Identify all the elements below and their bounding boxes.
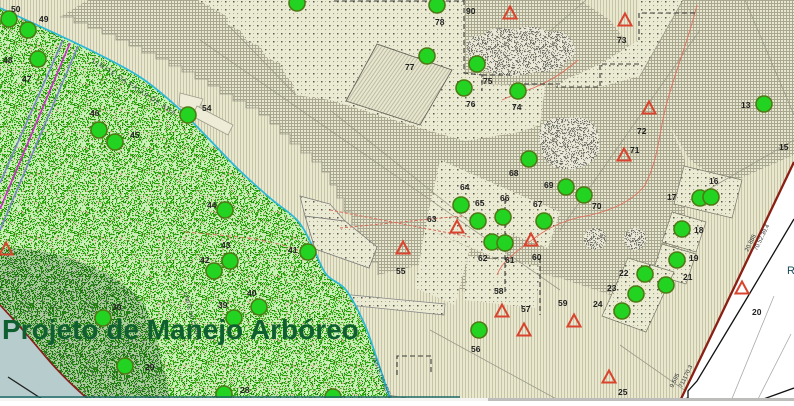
svg-text:41: 41 (288, 245, 298, 255)
svg-text:71: 71 (630, 145, 640, 155)
svg-text:67: 67 (533, 199, 543, 209)
svg-text:21: 21 (683, 272, 693, 282)
svg-text:77: 77 (405, 62, 415, 72)
svg-text:48: 48 (3, 55, 13, 65)
svg-text:20: 20 (752, 307, 762, 317)
svg-text:13: 13 (741, 100, 751, 110)
svg-text:65: 65 (475, 198, 485, 208)
svg-text:58: 58 (494, 286, 504, 296)
svg-text:29: 29 (145, 362, 155, 372)
svg-text:28: 28 (240, 385, 250, 395)
svg-text:56: 56 (471, 344, 481, 354)
svg-text:66: 66 (500, 193, 510, 203)
svg-text:73: 73 (617, 35, 627, 45)
svg-text:16: 16 (709, 176, 719, 186)
svg-text:74: 74 (512, 102, 522, 112)
svg-text:Projeto de Manejo Arbóreo: Projeto de Manejo Arbóreo (2, 314, 359, 345)
svg-text:90: 90 (466, 6, 476, 16)
svg-text:50: 50 (11, 4, 21, 14)
svg-text:55: 55 (396, 266, 406, 276)
svg-text:57: 57 (521, 304, 531, 314)
svg-text:39: 39 (218, 300, 228, 310)
svg-text:78: 78 (435, 17, 445, 27)
svg-text:75: 75 (483, 76, 493, 86)
svg-text:47: 47 (22, 74, 32, 84)
svg-text:22: 22 (619, 268, 629, 278)
svg-text:70: 70 (592, 201, 602, 211)
svg-text:17: 17 (667, 192, 677, 202)
svg-text:62: 62 (478, 253, 488, 263)
svg-text:30: 30 (112, 302, 122, 312)
svg-text:72: 72 (637, 126, 647, 136)
svg-text:40: 40 (247, 288, 257, 298)
svg-text:25: 25 (618, 387, 628, 397)
svg-text:69: 69 (544, 180, 554, 190)
svg-text:54: 54 (202, 103, 212, 113)
svg-text:44: 44 (207, 200, 217, 210)
svg-text:45: 45 (130, 130, 140, 140)
svg-text:18: 18 (694, 225, 704, 235)
svg-text:60: 60 (532, 252, 542, 262)
svg-text:63: 63 (427, 214, 437, 224)
svg-text:61: 61 (505, 255, 515, 265)
svg-text:24: 24 (593, 299, 603, 309)
svg-text:15: 15 (779, 142, 789, 152)
svg-text:19: 19 (689, 253, 699, 263)
svg-text:46: 46 (90, 108, 100, 118)
svg-text:76: 76 (466, 99, 476, 109)
svg-text:64: 64 (460, 182, 470, 192)
svg-text:23: 23 (607, 283, 617, 293)
svg-text:R: R (787, 265, 794, 277)
svg-text:42: 42 (200, 255, 210, 265)
svg-text:49: 49 (39, 14, 49, 24)
svg-text:43: 43 (221, 240, 231, 250)
svg-text:68: 68 (509, 168, 519, 178)
svg-text:59: 59 (558, 298, 568, 308)
